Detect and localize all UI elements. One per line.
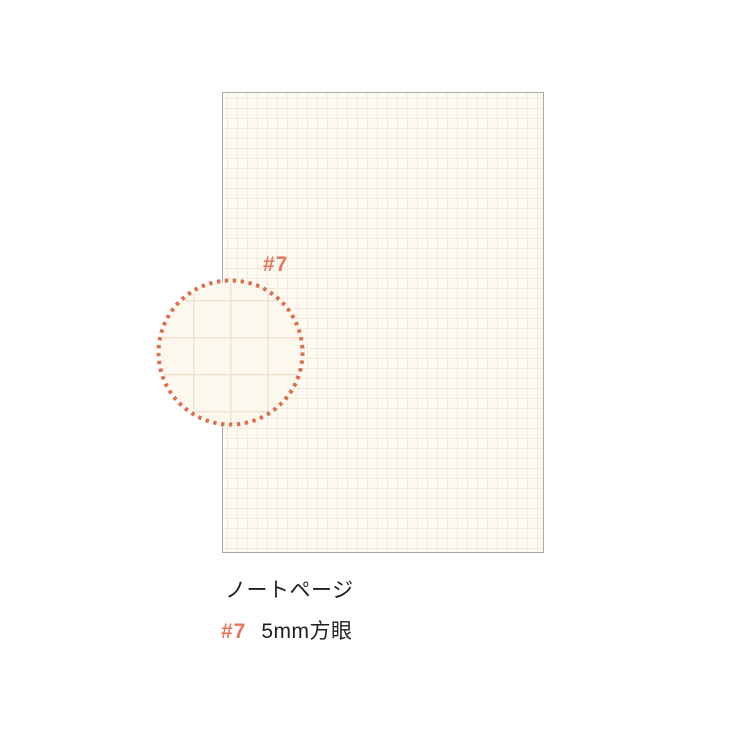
page-title: ノートページ (225, 574, 354, 604)
magnifier-dotted-circle-icon (150, 272, 311, 433)
grid-number-label: #7 (263, 253, 288, 277)
product-illustration: #7 ノートページ #7 5mm方眼 (0, 0, 750, 750)
caption-row: #7 5mm方眼 (221, 615, 353, 645)
item-description: 5mm方眼 (261, 615, 352, 645)
item-number: #7 (221, 620, 246, 644)
